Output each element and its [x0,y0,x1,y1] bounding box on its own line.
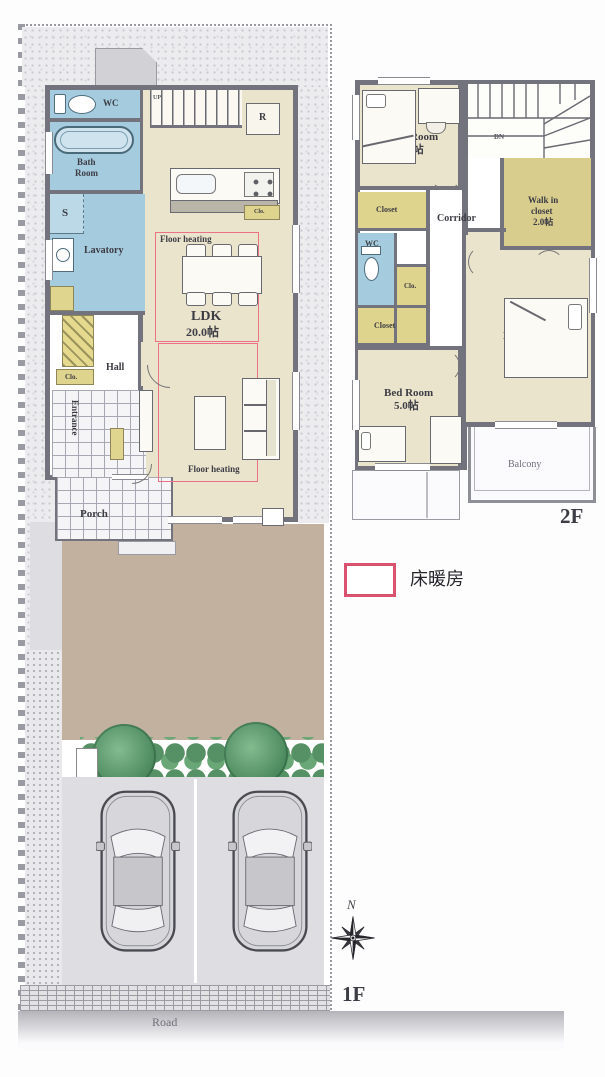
legend-floor-heating-label: 床暖房 [410,570,464,588]
balcony-window [495,421,557,429]
pillow-icon [366,94,386,108]
pillow-icon [361,432,371,450]
hall-closet-label: Clo. [65,374,77,381]
gravel-top [22,27,328,87]
porch-step [118,541,176,555]
bedroom2-size-label: 5.0帖 [394,401,419,412]
compass-rose-icon [330,915,376,961]
kitchen-closet: Clo. [244,205,280,220]
dining-chair [212,292,232,306]
desk [418,88,460,124]
washer-drum [56,248,70,262]
walkin-door-arc [534,250,564,280]
walkin-size-label: 2.0帖 [533,218,553,227]
porch-roof-outline [352,470,460,520]
pillow-icon [568,304,582,330]
entrance-label: Entrance [70,400,79,436]
car-icon [96,786,180,958]
coffee-table [194,396,226,450]
gravel-strip-lower [25,650,62,986]
ldk-size-label: 20.0帖 [186,326,219,338]
site-boundary-ticks [18,24,25,1014]
window [352,95,360,140]
refrigerator-label: R [259,113,266,123]
legend-floor-heating-swatch [344,563,396,597]
hall-closet: Clo. [56,369,94,385]
desk [430,416,462,464]
ldk-label: LDK [191,310,221,324]
stairs-1f-label: UP [153,95,161,101]
window [375,463,430,471]
bedroom2-door-arc [428,350,460,382]
hall-label: Hall [106,363,124,373]
kitchen-closet-label: Clo. [254,209,265,215]
bathtub-inner [60,131,128,149]
gate-post [76,748,98,778]
bath-label-2: Room [75,169,98,178]
porch-roof-line [426,472,428,518]
stairs-1f [150,90,242,128]
bath-label-1: Bath [77,158,96,167]
car-icon [228,786,312,958]
toilet-tank-icon [361,246,381,255]
stove [244,172,274,197]
corridor-label: Corridor [437,214,476,224]
porch-label: Porch [80,509,108,520]
road-label: Road [152,1016,177,1028]
floorplan-page: Road WC Bath Room S Lavatory Clo. Hall E… [0,0,605,1077]
roof-overhang [95,48,157,86]
master-door-arc [468,246,500,278]
bedroom1-door-arc [430,158,462,190]
floor-heating-label-upper: Floor heating [160,235,212,244]
under-stair-storage [62,315,94,367]
compass-north-label: N [347,898,356,911]
lavatory-label: Lavatory [84,246,123,256]
outdoor-unit [262,508,284,526]
parking-stall-line [194,779,197,983]
dining-chair [186,292,206,306]
toilet-bowl-icon [364,257,379,281]
window [45,240,53,280]
dining-chair [238,292,258,306]
floor-heating-label-lower: Floor heating [188,465,240,474]
stairs-2f-label: DN [494,134,504,141]
bedroom2-label: Bed Room [384,388,433,399]
desk-chair [426,122,446,134]
porch-floor [55,477,173,541]
tv-board [139,390,153,452]
walkin-label-2: closet [531,207,553,216]
closet-small-label: Clo. [404,283,416,290]
walkin-label-1: Walk in [528,196,558,205]
kitchen-sink [176,174,216,194]
sofa-back [266,380,276,456]
toilet-tank-icon [54,94,66,114]
toilet-bowl-icon [68,95,96,114]
lavatory-cabinet [50,286,74,311]
garden-ground [62,524,324,740]
closet-lower-label: Closet [374,322,395,330]
storage-s-label: S [62,208,68,219]
window [352,380,360,430]
wc-label: WC [103,99,119,108]
window [292,225,300,293]
window [45,132,53,174]
sidewalk-strip [20,985,330,1011]
balcony-label: Balcony [508,460,541,470]
closet-upper-label: Closet [376,206,397,214]
sofa-seam [244,430,266,432]
floor1-label: 1F [342,984,365,1005]
window [589,258,597,313]
window [168,516,222,524]
floor2-label: 2F [560,506,583,527]
sofa-seam [244,404,266,406]
window [292,372,300,430]
window [378,77,430,85]
road-band [18,1011,564,1049]
gravel-right [298,87,329,523]
dining-table [182,256,262,294]
stairs-2f [468,84,590,158]
